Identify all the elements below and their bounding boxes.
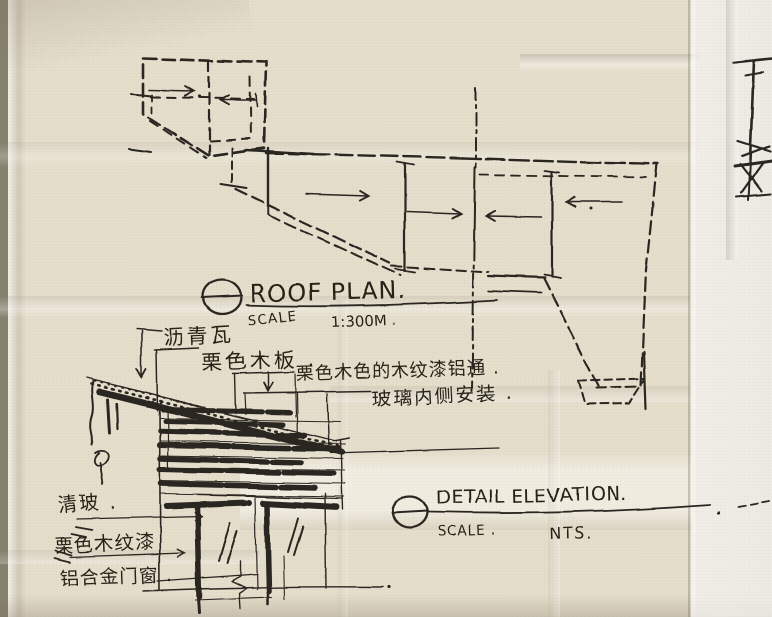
detail-annotations: 沥青瓦 栗色木板 . 栗色木色的木纹漆铝通 . 玻璃内侧安装 . 清玻 . 栗色… [54,322,514,590]
label-asphalt-shingle: 沥青瓦 [162,322,235,350]
eave-scribble [94,450,108,484]
slope-arrow-right-icon [407,212,461,214]
window-mullion [197,507,199,597]
break-line-symbol [231,561,246,609]
adjacent-sheet-sketch [733,59,772,507]
sketch-drawing: ROOF PLAN. SCALE 1:300M . [0,0,772,617]
detail-elevation-scale-label: SCALE . [438,522,497,540]
elevation-left-edge [159,406,160,590]
leader-arrow-down-icon [156,350,157,409]
label-glass-inner-side-install: 玻璃内侧安装 . [371,382,514,411]
slope-arrow-right-icon [149,90,193,91]
roof-plan-band [221,88,658,391]
window-mullion [267,506,269,591]
roof-plan-scale-label: SCALE [247,308,299,329]
slope-arrow-left-icon [486,216,541,217]
eave-drip-edge [91,381,94,444]
detail-elevation-drawing: 沥青瓦 栗色木板 . 栗色木色的木纹漆铝通 . 玻璃内侧安装 . 清玻 . 栗色… [54,322,721,613]
roof-plan-right-wing [544,164,657,409]
detail-elevation-title-block: DETAIL ELEVATION. SCALE . NTS. [392,483,721,544]
label-clear-glass: 清玻 . [57,489,119,517]
photo-of-hand-drawn-sketch: ROOF PLAN. SCALE 1:300M . [0,0,772,617]
roof-plan-scale-value: 1:300M . [330,311,397,332]
roof-plan-title: ROOF PLAN. [249,276,406,308]
ridge-centerline [474,167,475,246]
label-aluminum-alloy-doors-windows: 铝合金门窗 . [59,564,174,590]
detail-elevation-title: DETAIL ELEVATION. [436,483,627,509]
leader-arrow-right-icon [77,516,201,519]
roof-plan-left-block [129,58,266,158]
ground-line [144,587,383,591]
slope-arrow-right-icon [306,194,368,196]
detail-elevation-scale-value: NTS. [548,523,594,544]
roof-plan-title-block: ROOF PLAN. SCALE 1:300M . [202,276,497,332]
label-wood-grain-aluminum-tube: 栗色木色的木纹漆铝通 . [295,357,499,385]
glazing-mark [219,523,237,563]
glazing-mark [288,518,303,555]
